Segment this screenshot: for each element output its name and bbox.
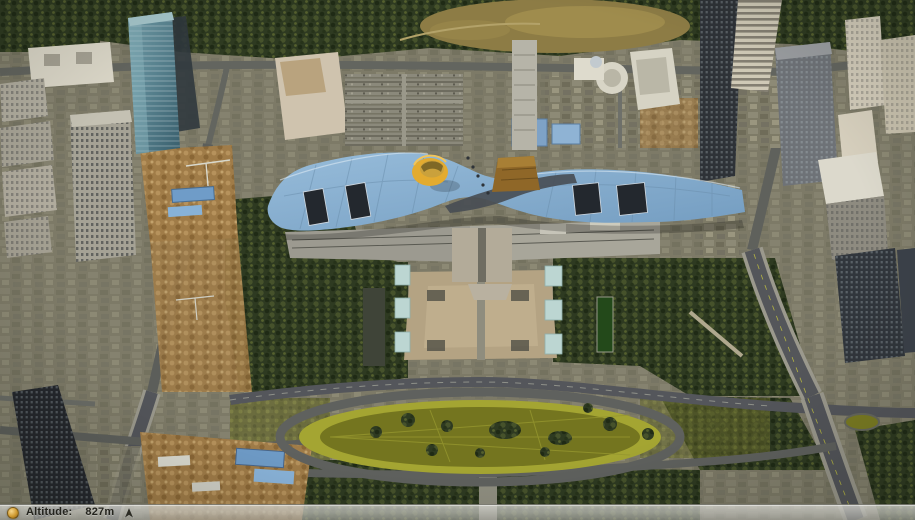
aerial-scene-svg bbox=[0, 0, 915, 520]
globe-status-icon bbox=[7, 507, 19, 519]
map-3d-viewport[interactable]: Altitude: 827m bbox=[0, 0, 915, 520]
vignette-overlay bbox=[0, 0, 915, 520]
status-bar: Altitude: 827m bbox=[0, 504, 915, 520]
aerial-scene bbox=[0, 0, 915, 520]
altitude-value: 827m bbox=[85, 505, 114, 520]
north-arrow-icon bbox=[123, 507, 135, 519]
altitude-label: Altitude: bbox=[26, 505, 72, 520]
